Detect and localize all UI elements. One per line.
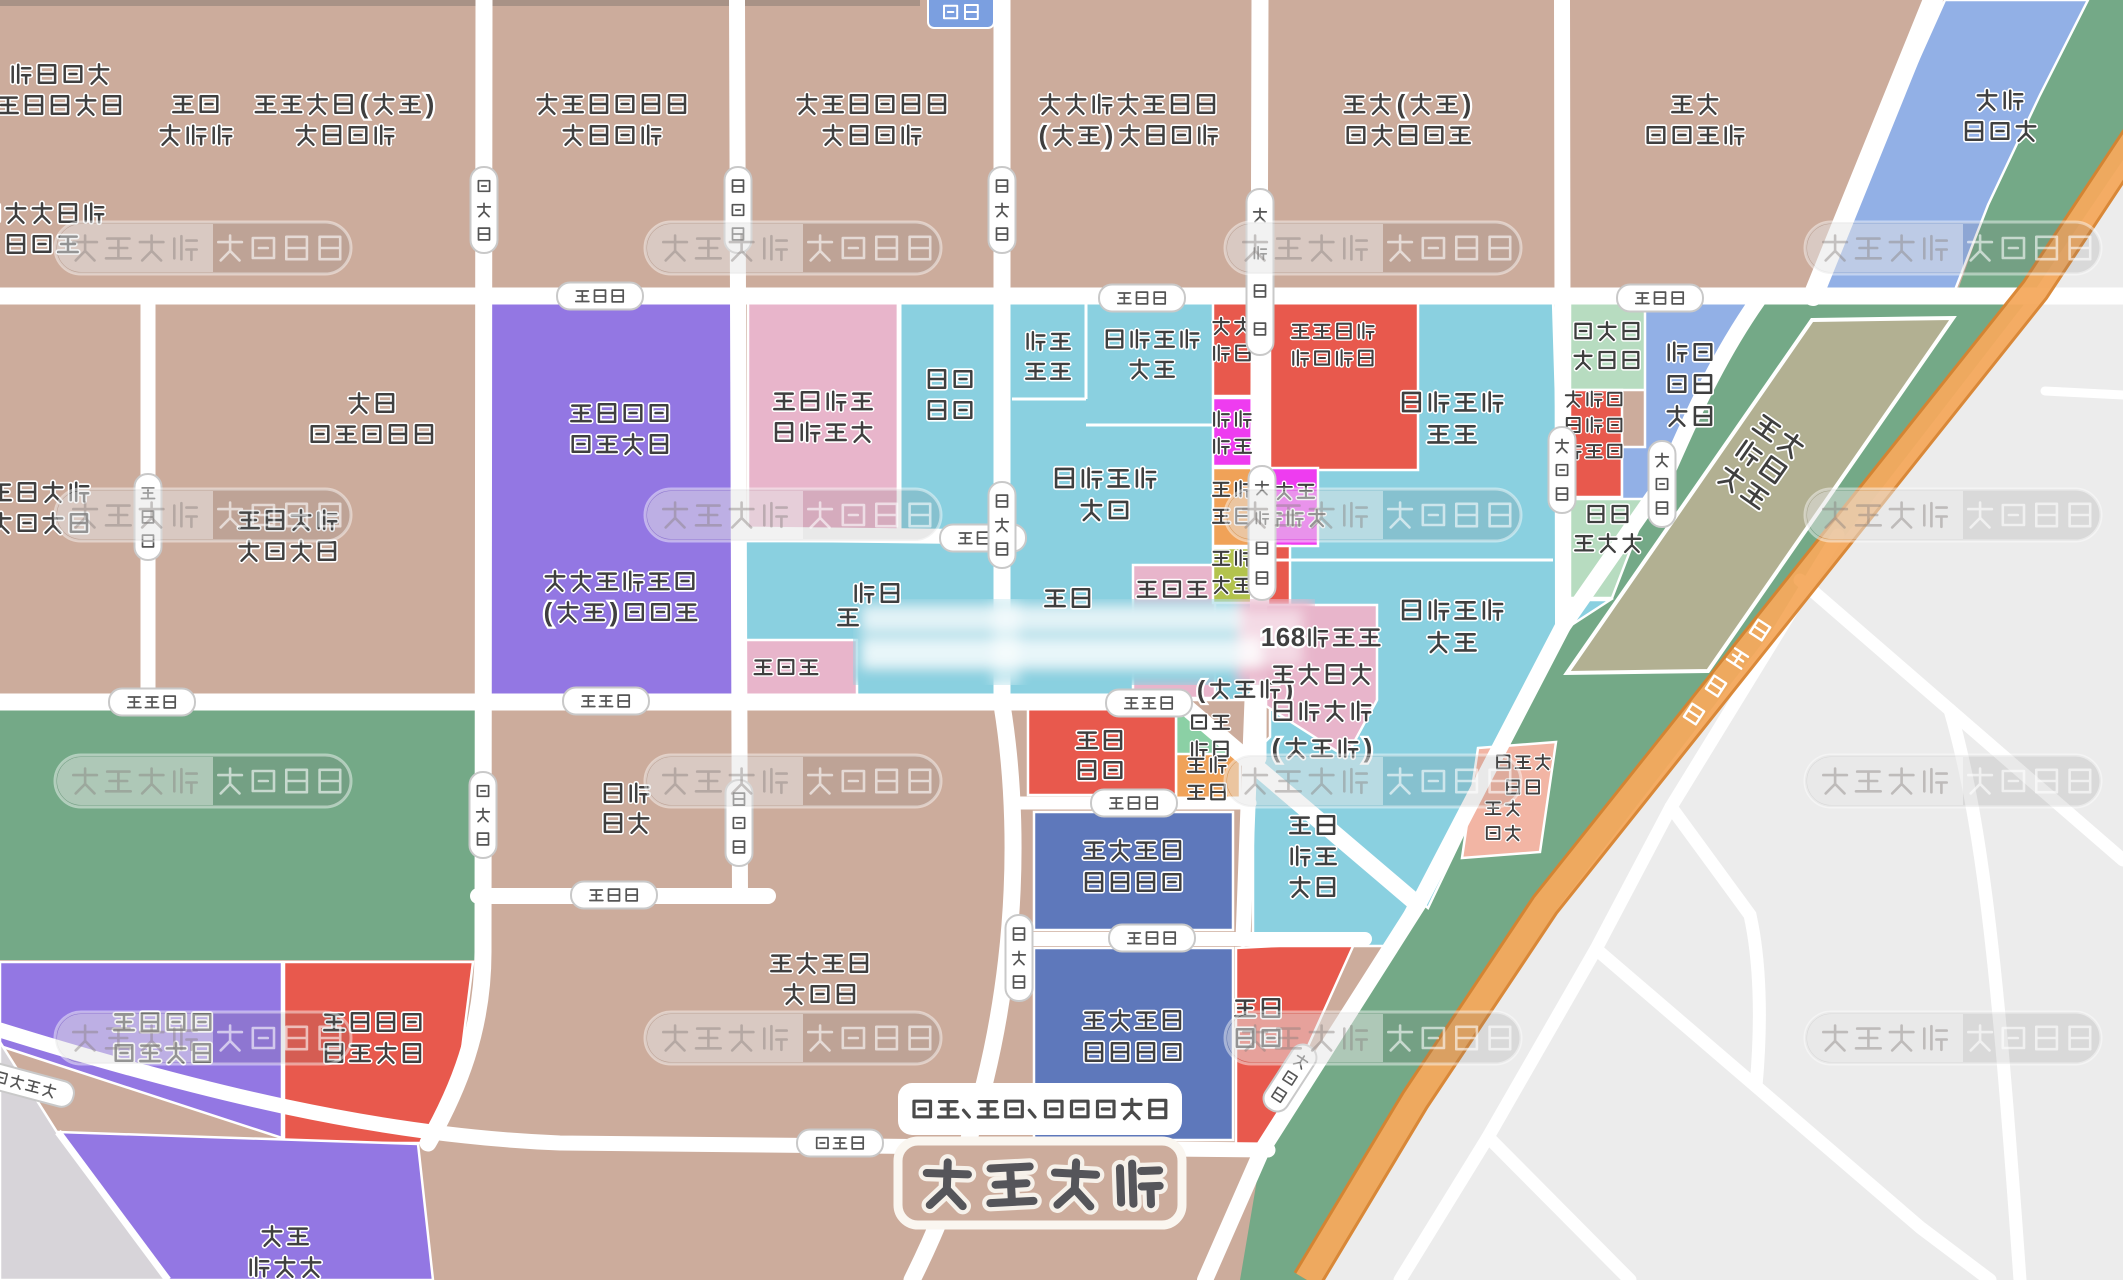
- svg-text:8: 8: [1291, 622, 1305, 652]
- svg-text:(: (: [1397, 89, 1406, 119]
- svg-text:6: 6: [1276, 622, 1290, 652]
- svg-text:): ): [1463, 89, 1472, 119]
- svg-text:(: (: [1039, 120, 1048, 150]
- svg-text:1: 1: [1261, 622, 1275, 652]
- svg-text:): ): [426, 89, 435, 119]
- svg-text:(: (: [360, 89, 369, 119]
- svg-text:): ): [610, 597, 619, 627]
- svg-text:(: (: [1197, 676, 1206, 704]
- svg-text:): ): [1105, 120, 1114, 150]
- svg-text:(: (: [544, 597, 553, 627]
